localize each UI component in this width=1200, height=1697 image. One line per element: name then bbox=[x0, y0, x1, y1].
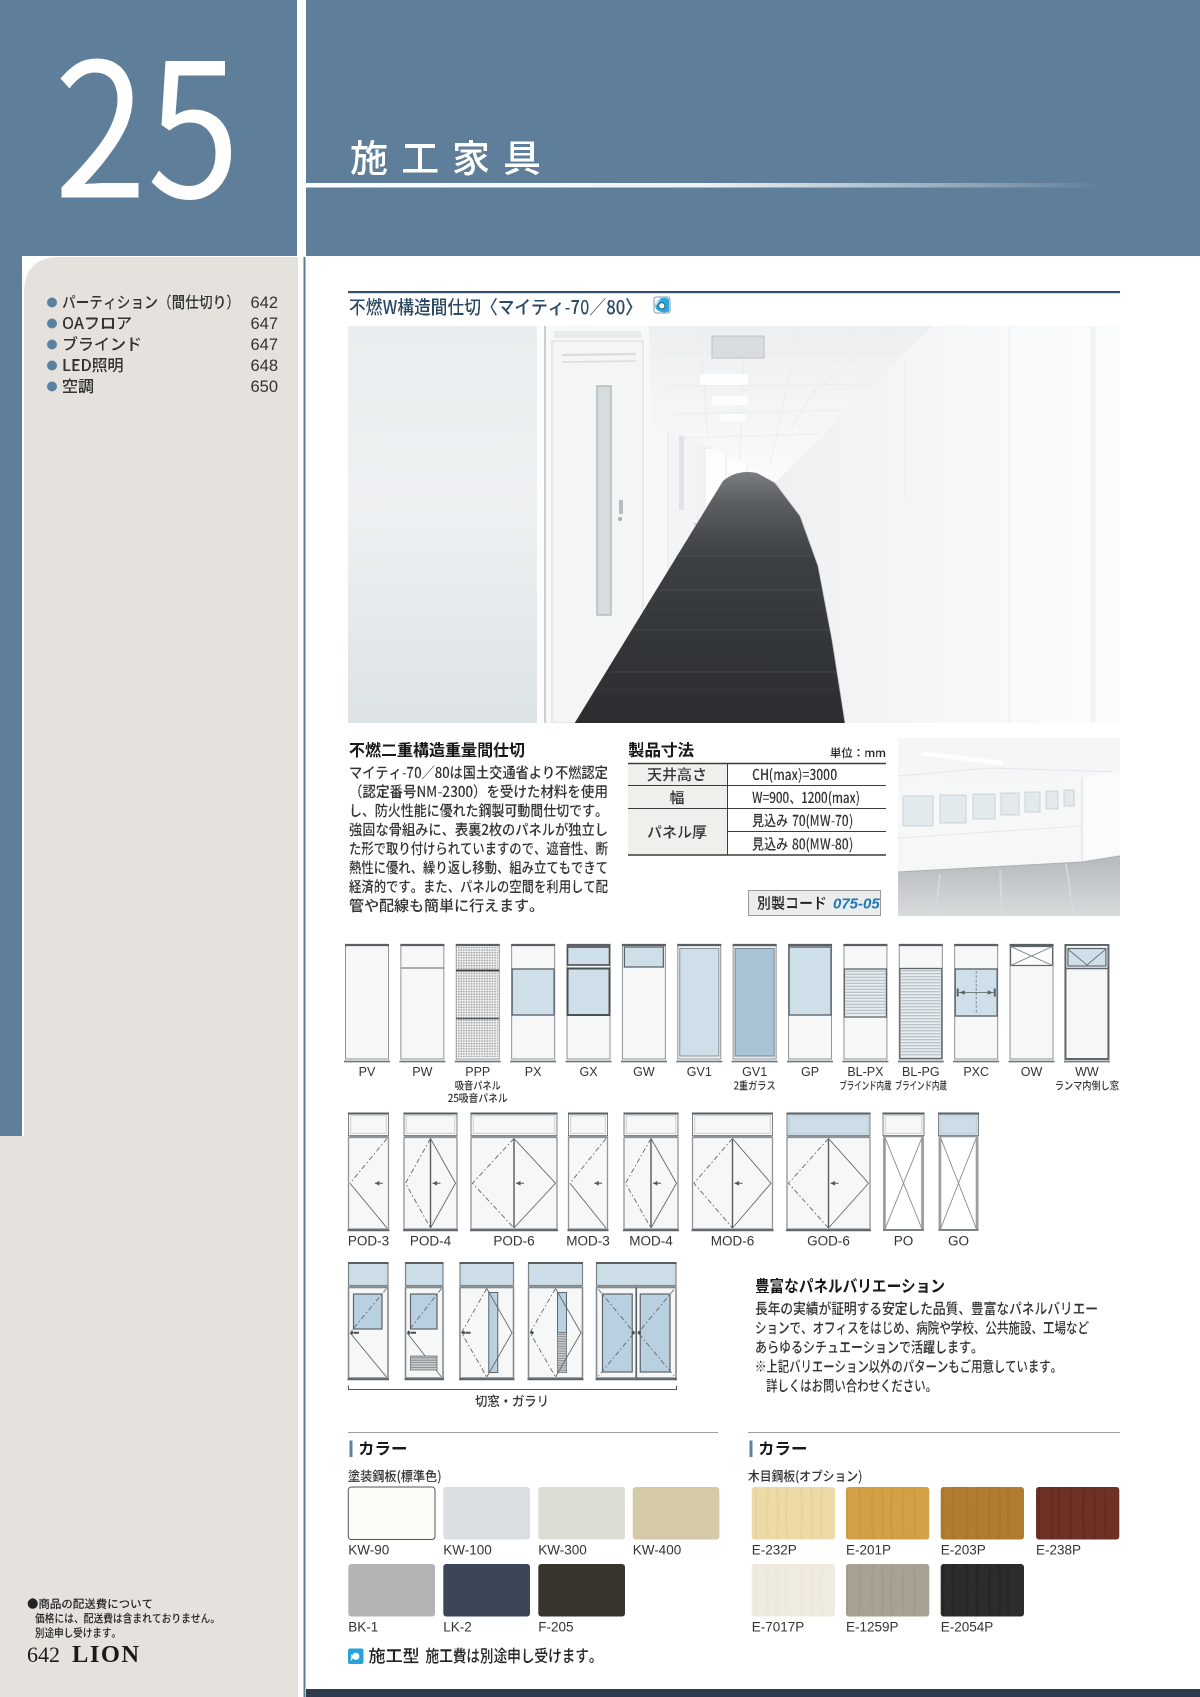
svg-text:GX: GX bbox=[579, 1065, 598, 1079]
svg-text:GP: GP bbox=[801, 1065, 819, 1079]
svg-text:647: 647 bbox=[250, 315, 278, 333]
svg-text:PV: PV bbox=[359, 1065, 376, 1079]
svg-text:OW: OW bbox=[1021, 1065, 1043, 1079]
svg-text:GOD-6: GOD-6 bbox=[807, 1234, 850, 1249]
svg-text:WW: WW bbox=[1075, 1065, 1099, 1079]
svg-text:E-7017P: E-7017P bbox=[752, 1620, 805, 1635]
svg-text:GV1: GV1 bbox=[687, 1065, 712, 1079]
svg-text:PXC: PXC bbox=[963, 1065, 989, 1079]
svg-text:GO: GO bbox=[948, 1234, 969, 1249]
svg-text:MOD-6: MOD-6 bbox=[711, 1234, 755, 1249]
svg-text:PX: PX bbox=[525, 1065, 542, 1079]
svg-text:E-1259P: E-1259P bbox=[846, 1620, 899, 1635]
svg-text:PO: PO bbox=[894, 1234, 914, 1249]
svg-text:BL-PG: BL-PG bbox=[902, 1065, 940, 1079]
svg-text:E-238P: E-238P bbox=[1036, 1543, 1081, 1558]
svg-text:642: 642 bbox=[250, 294, 278, 312]
svg-text:KW-90: KW-90 bbox=[348, 1543, 389, 1558]
svg-text:GW: GW bbox=[633, 1065, 655, 1079]
svg-text:E-232P: E-232P bbox=[752, 1543, 797, 1558]
svg-text:E-2054P: E-2054P bbox=[941, 1620, 994, 1635]
svg-text:KW-400: KW-400 bbox=[633, 1543, 682, 1558]
svg-text:647: 647 bbox=[250, 336, 278, 354]
svg-text:642: 642 bbox=[27, 1642, 60, 1667]
svg-text:PW: PW bbox=[412, 1065, 432, 1079]
svg-text:POD-6: POD-6 bbox=[493, 1234, 534, 1249]
svg-text:KW-300: KW-300 bbox=[538, 1543, 587, 1558]
svg-text:BK-1: BK-1 bbox=[348, 1620, 378, 1635]
svg-text:648: 648 bbox=[250, 357, 278, 375]
svg-text:POD-4: POD-4 bbox=[410, 1234, 452, 1249]
svg-text:E-201P: E-201P bbox=[846, 1543, 891, 1558]
svg-text:075-05: 075-05 bbox=[833, 896, 880, 913]
svg-text:GV1: GV1 bbox=[742, 1065, 767, 1079]
svg-text:F-205: F-205 bbox=[538, 1620, 573, 1635]
svg-text:BL-PX: BL-PX bbox=[847, 1065, 884, 1079]
svg-text:MOD-3: MOD-3 bbox=[566, 1234, 610, 1249]
svg-text:650: 650 bbox=[250, 378, 278, 396]
svg-text:PPP: PPP bbox=[465, 1065, 490, 1079]
svg-text:KW-100: KW-100 bbox=[443, 1543, 492, 1558]
svg-text:POD-3: POD-3 bbox=[348, 1234, 389, 1249]
svg-text:LK-2: LK-2 bbox=[443, 1620, 472, 1635]
svg-text:MOD-4: MOD-4 bbox=[629, 1234, 673, 1249]
svg-text:E-203P: E-203P bbox=[941, 1543, 986, 1558]
svg-text:LION: LION bbox=[72, 1641, 141, 1668]
